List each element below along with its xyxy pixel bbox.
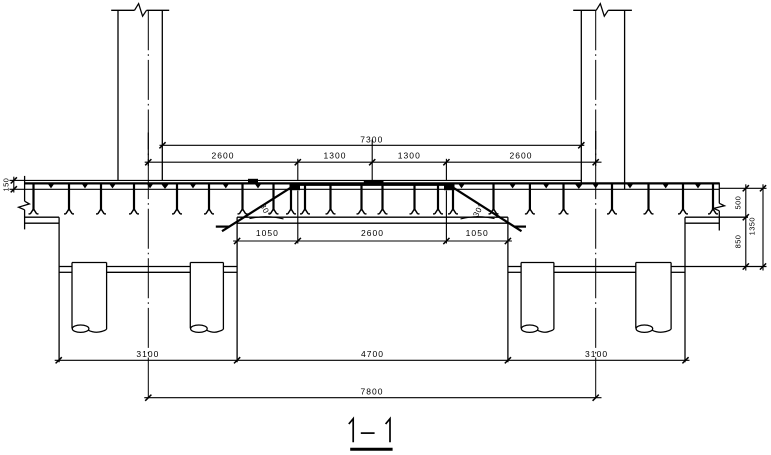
svg-text:500: 500 [733, 196, 742, 210]
svg-text:7800: 7800 [360, 386, 383, 396]
svg-text:850: 850 [733, 235, 742, 249]
svg-text:3100: 3100 [585, 349, 608, 359]
svg-text:2600: 2600 [361, 228, 384, 238]
svg-text:150: 150 [2, 178, 11, 192]
svg-text:3100: 3100 [136, 349, 159, 359]
svg-text:4700: 4700 [361, 349, 384, 359]
svg-text:1050: 1050 [256, 228, 279, 238]
svg-text:1050: 1050 [466, 228, 489, 238]
svg-text:2600: 2600 [509, 151, 532, 161]
svg-text:1300: 1300 [398, 151, 421, 161]
svg-text:1300: 1300 [323, 151, 346, 161]
svg-text:1350: 1350 [747, 217, 756, 235]
svg-text:2600: 2600 [211, 151, 234, 161]
